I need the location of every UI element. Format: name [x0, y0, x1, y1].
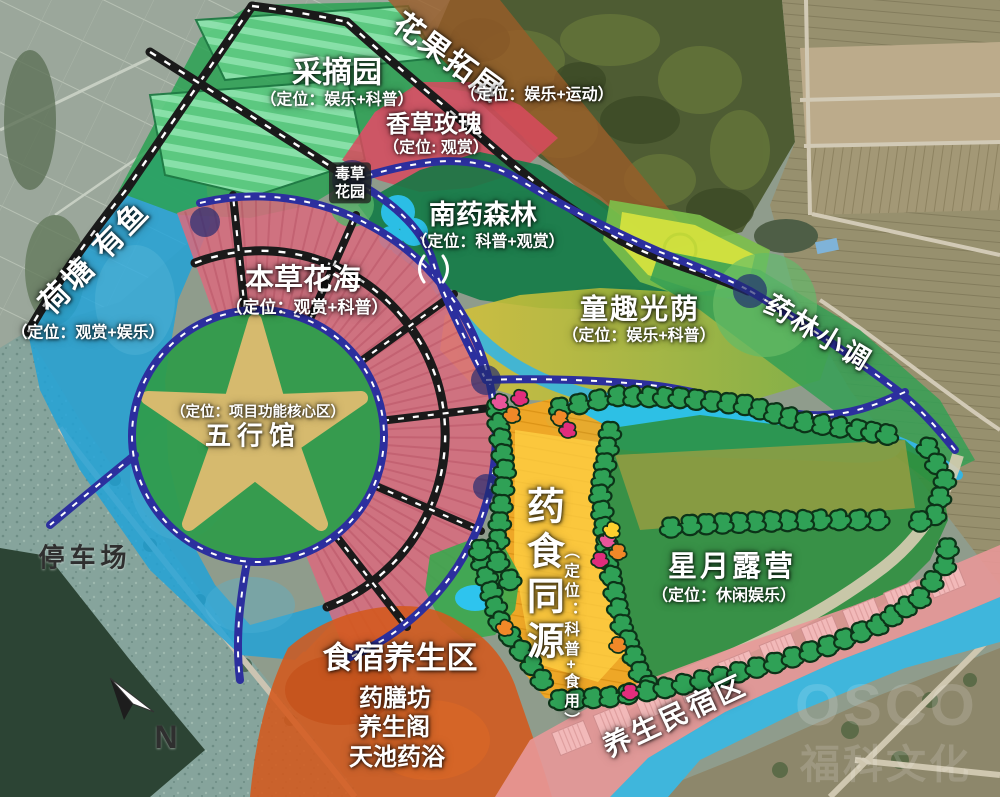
- poison-garden-line1: 毒草: [335, 165, 365, 183]
- zone-positioning-fruit-expansion: （定位：娱乐+运动）: [460, 87, 613, 106]
- zone-label-flower-sea: 本草花海: [245, 263, 361, 297]
- dining-item-3: 天池药浴: [349, 744, 445, 772]
- zone-label-five-elements: 五行馆: [205, 421, 301, 452]
- zone-label-herb-rose: 香草玫瑰: [386, 111, 482, 139]
- zone-positioning-medicine-food: （定位：科普+食用）: [561, 543, 579, 732]
- zone-label-dining-wellness: 食宿养生区: [323, 641, 478, 678]
- zone-label-picking-garden: 采摘园: [292, 55, 382, 90]
- zone-positioning-south-medicine-forest: （定位：科普+观赏）: [411, 234, 564, 253]
- zone-positioning-herb-rose: （定位: 观赏）: [383, 140, 489, 159]
- zone-positioning-childhood-light: （定位：娱乐+科普）: [562, 328, 715, 347]
- zone-positioning-five-elements: （定位：项目功能核心区）: [171, 404, 345, 421]
- watermark-name: 福科文化: [800, 732, 972, 790]
- zone-positioning-flower-sea: （定位：观赏+科普）: [226, 298, 389, 318]
- zone-label-medicine-food: 药食同源: [519, 486, 564, 666]
- zone-label-parking: 停车场: [38, 543, 131, 574]
- dining-item-2: 养生阁: [358, 714, 430, 742]
- zone-positioning-camping: （定位：休闲娱乐）: [652, 588, 796, 607]
- zone-label-childhood-light: 童趣光荫: [580, 292, 700, 325]
- dining-item-1: 药膳坊: [359, 685, 431, 713]
- zone-label-south-medicine-forest: 南药森林: [429, 200, 537, 232]
- poison-garden-line2: 花园: [335, 183, 365, 201]
- zone-label-poison-garden: 毒草 花园: [329, 162, 371, 203]
- watermark-logo: OSCO: [795, 672, 978, 739]
- zone-positioning-picking-garden: （定位：娱乐+科普）: [260, 92, 413, 111]
- zone-label-camping: 星月露营: [668, 550, 796, 584]
- master-plan-map: 采摘园 （定位：娱乐+科普） 花果拓展 （定位：娱乐+运动） 香草玫瑰 （定位:…: [0, 0, 1000, 797]
- zone-positioning-lotus-pond: （定位：观赏+娱乐）: [11, 325, 164, 344]
- compass-north-label: N: [154, 719, 177, 757]
